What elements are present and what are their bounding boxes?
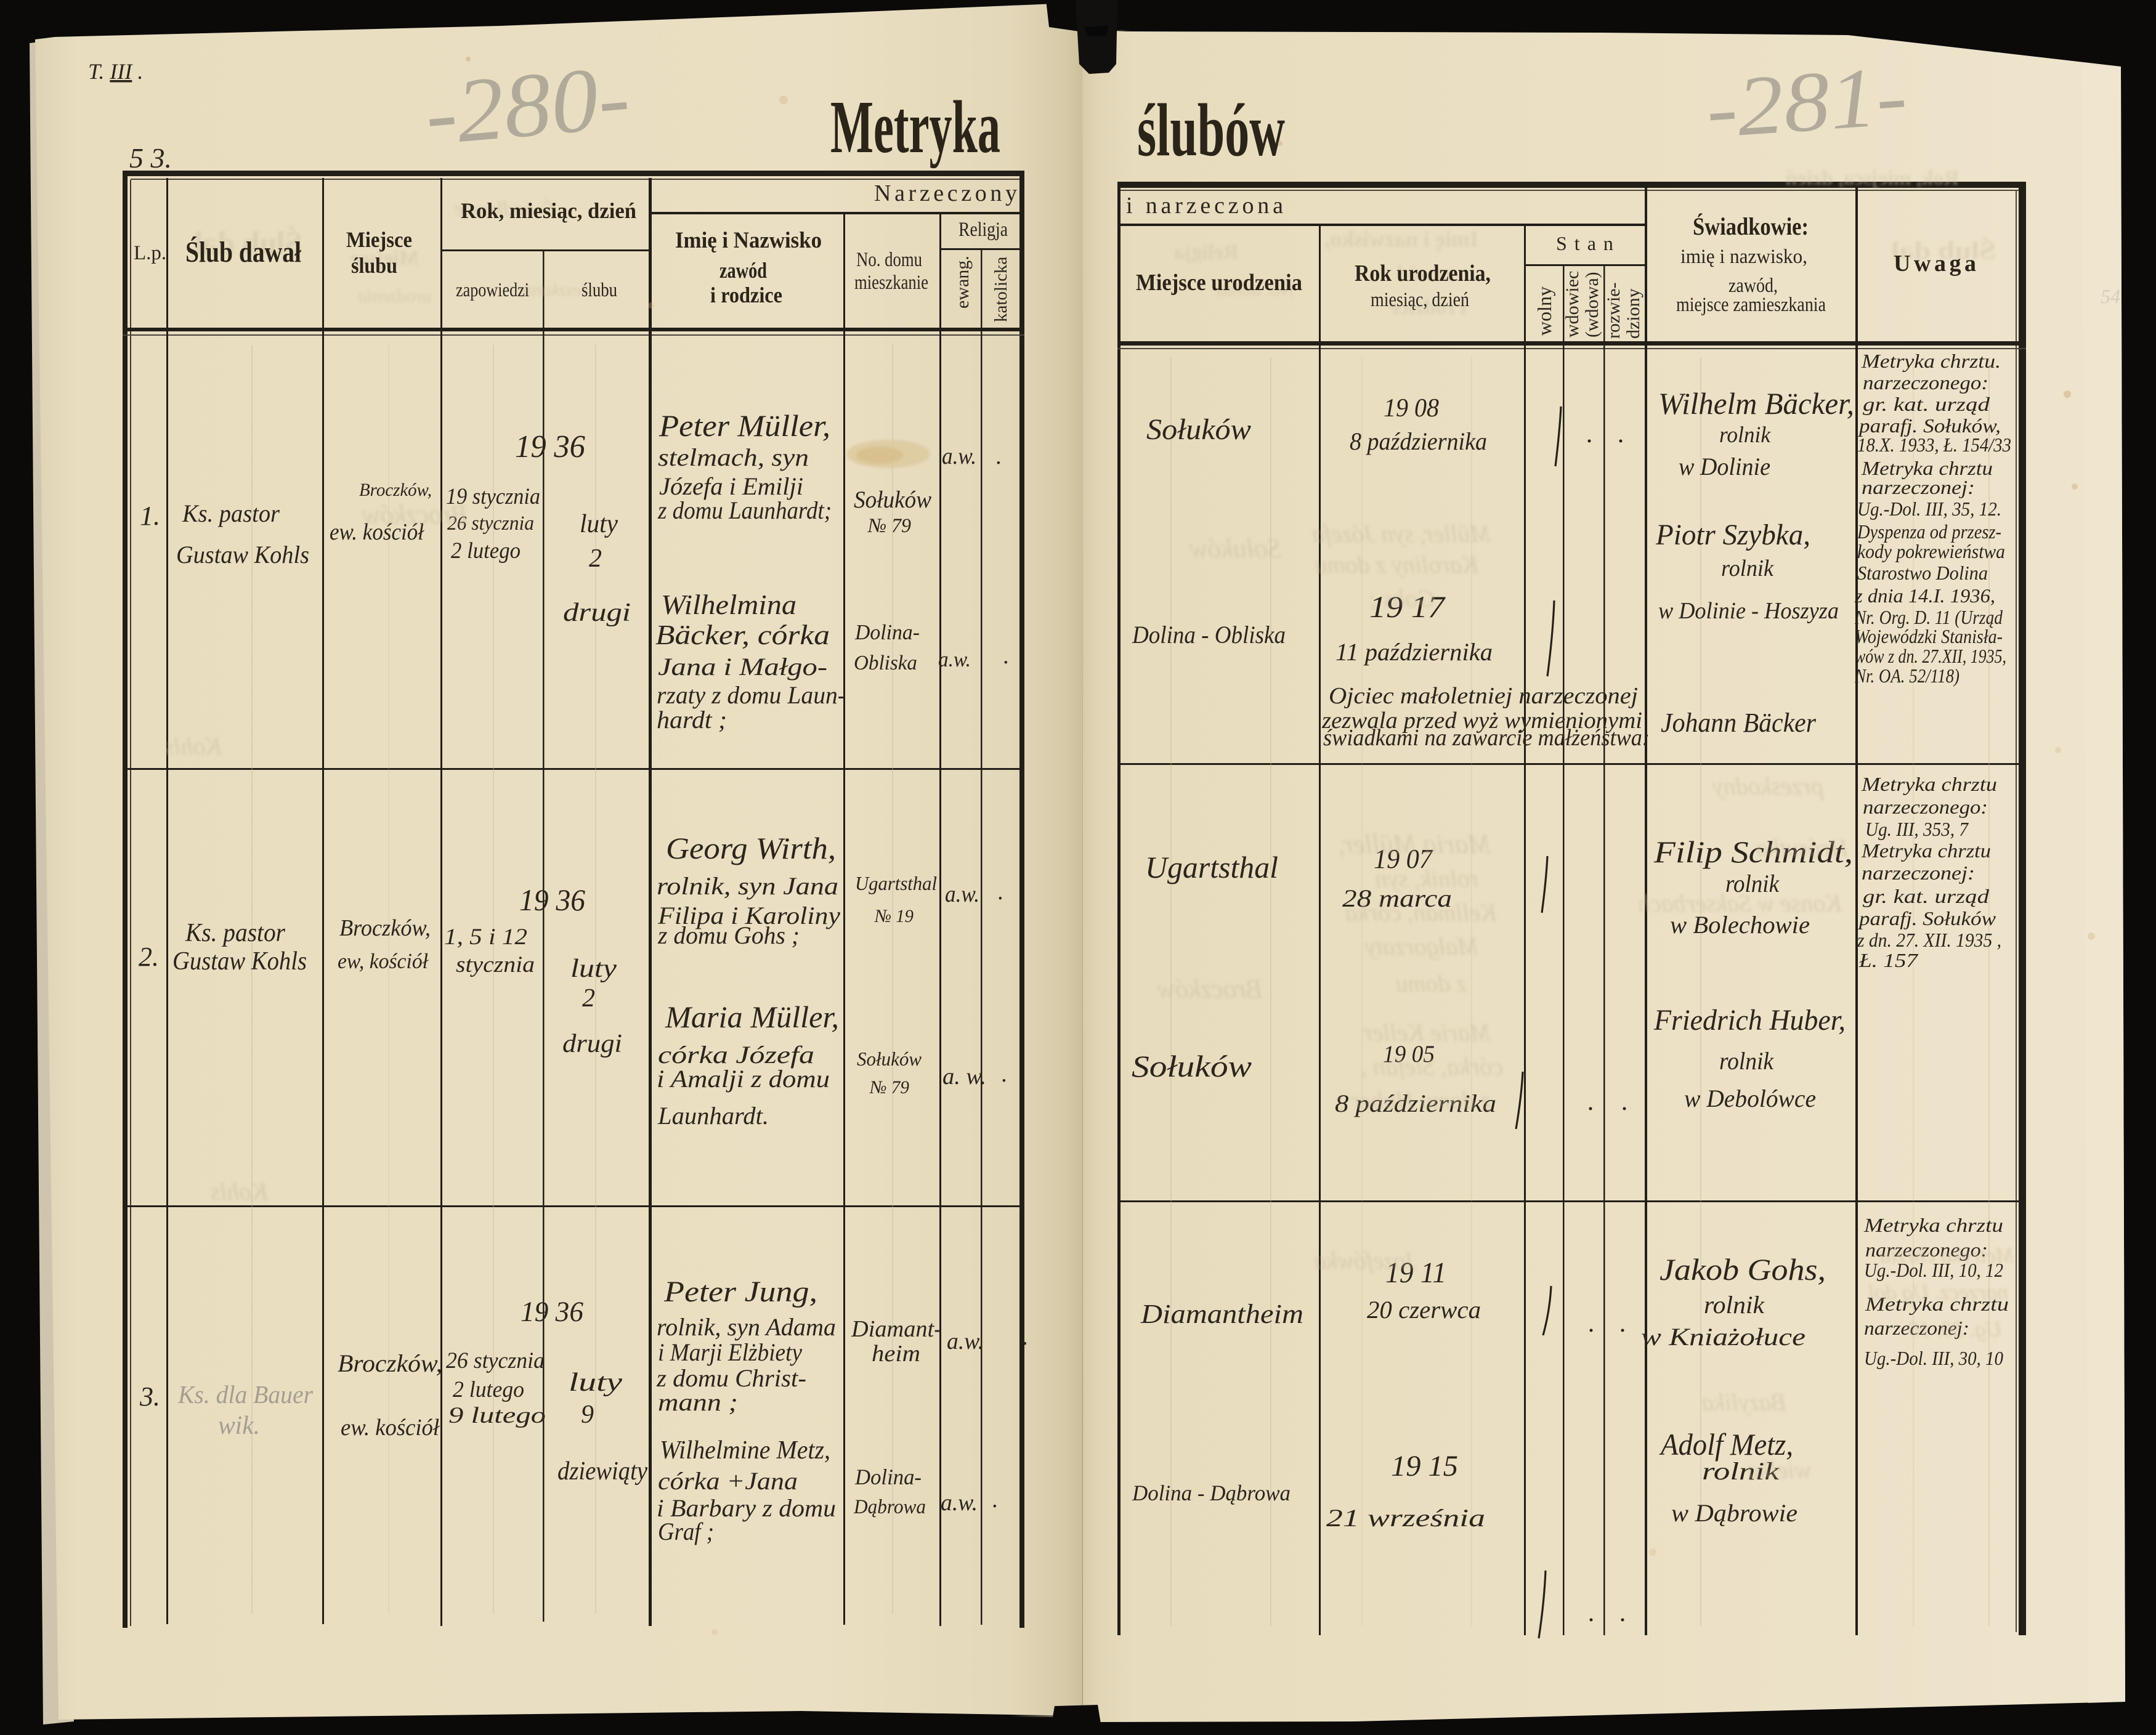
svg-text:narzeczonego:: narzeczonego: [1863, 371, 1988, 394]
svg-text:-280-: -280- [421, 46, 634, 164]
svg-text:Nr. OA. 52/118): Nr. OA. 52/118) [1854, 665, 1959, 687]
svg-text:luty: luty [580, 510, 618, 538]
svg-text:Religja: Religja [958, 219, 1008, 241]
svg-text:miesiąc, dzień: miesiąc, dzień [1371, 289, 1469, 311]
svg-text:Miejsce urodzenia: Miejsce urodzenia [1136, 270, 1302, 296]
svg-text:Jakob Gohs,: Jakob Gohs, [1660, 1252, 1826, 1287]
svg-text:Karoliny z domu: Karoliny z domu [1315, 551, 1479, 578]
svg-text:Miejsce: Miejsce [346, 227, 412, 252]
svg-text:świadkami na zawarcie małżeńst: świadkami na zawarcie małżeństwa: [1323, 725, 1650, 751]
svg-text:.: . [1023, 1324, 1029, 1350]
svg-text:Ks. pastor: Ks. pastor [185, 919, 286, 947]
svg-text:ślubów: ślubów [1137, 89, 1285, 172]
svg-text:Ug.-Dol. III, 30, 10: Ug.-Dol. III, 30, 10 [1864, 1347, 2003, 1369]
svg-text:drugi: drugi [562, 1030, 622, 1058]
svg-text:Kellman, córka: Kellman, córka [1345, 899, 1497, 926]
svg-text:Imię i Nazwisko: Imię i Nazwisko [675, 228, 822, 253]
svg-text:dziewiąty: dziewiąty [557, 1457, 647, 1486]
svg-text:Ug. 30. 10: Ug. 30. 10 [1908, 1317, 2002, 1341]
svg-text:Diamant-: Diamant- [851, 1316, 942, 1342]
svg-text:a.w.: a.w. [942, 443, 976, 469]
svg-text:urodzenia: urodzenia [358, 286, 431, 306]
svg-text:i rodzice: i rodzice [710, 283, 782, 307]
svg-text:Ugartsthal: Ugartsthal [1145, 850, 1278, 884]
svg-text:Broczków,: Broczków, [338, 1349, 442, 1377]
svg-text:№ 79: № 79 [867, 515, 911, 537]
svg-text:Starostwo Dolina: Starostwo Dolina [1857, 562, 1988, 584]
svg-text:Metryka chrztu: Metryka chrztu [1861, 773, 1997, 795]
svg-text:20 czerwca: 20 czerwca [1367, 1296, 1481, 1324]
svg-text:zapowiedzi: zapowiedzi [456, 278, 529, 301]
svg-text:z domu Launhardt;: z domu Launhardt; [657, 496, 832, 524]
svg-text:Müller, syn Józefa: Müller, syn Józefa [1312, 520, 1491, 548]
svg-text:19 36: 19 36 [515, 429, 585, 464]
svg-text:Ojciec małoletniej narzeczonej: Ojciec małoletniej narzeczonej [1329, 683, 1638, 709]
svg-text:Bazylika: Bazylika [1701, 1388, 1786, 1416]
svg-text:rzaty z domu Laun-: rzaty z domu Laun- [657, 681, 846, 709]
svg-text:wdowiec: wdowiec [1562, 271, 1583, 338]
svg-text:stelmach, syn: stelmach, syn [658, 443, 809, 471]
svg-text:gr. kat. urząd: gr. kat. urząd [1863, 393, 1990, 415]
svg-text:Dyspenza od przesz-: Dyspenza od przesz- [1857, 520, 2001, 543]
svg-text:Wilhelm Bäcker,: Wilhelm Bäcker, [1658, 386, 1854, 421]
svg-text:Kohls: Kohls [211, 1178, 269, 1205]
svg-text:Ks. dla Bauer: Ks. dla Bauer [177, 1380, 314, 1409]
svg-text:2 lutego: 2 lutego [451, 538, 521, 564]
svg-text:wielka: wielka [1747, 1456, 1811, 1484]
svg-text:Gohs ;: Gohs ; [1369, 584, 1435, 612]
svg-text:imię i nazwisko,: imię i nazwisko, [1680, 246, 1807, 268]
svg-text:1, 5 i 12: 1, 5 i 12 [444, 924, 527, 950]
svg-text:Diamantheim: Diamantheim [1140, 1299, 1303, 1329]
svg-text:kody pokrewieństwa: kody pokrewieństwa [1857, 540, 2005, 562]
svg-text:rolnik, syn Jana: rolnik, syn Jana [657, 872, 838, 900]
svg-text:Uwaga: Uwaga [1894, 251, 1982, 277]
svg-text:z dn. 27. XII. 1935 ,: z dn. 27. XII. 1935 , [1857, 929, 2001, 951]
svg-text:w Dolinie - Hoszyza: w Dolinie - Hoszyza [1658, 598, 1839, 624]
svg-text:drugi: drugi [563, 599, 631, 627]
svg-text:Hrósutko: Hrósutko [1756, 834, 1849, 862]
svg-text:a.w.: a.w. [938, 647, 971, 671]
svg-text:córka, Stefan ,: córka, Stefan , [1361, 1053, 1503, 1080]
svg-text:.: . [996, 443, 1002, 469]
svg-text:Rok, miesiąc, dzień: Rok, miesiąc, dzień [461, 198, 636, 223]
svg-text:Jana i Małgo-: Jana i Małgo- [658, 653, 827, 681]
svg-text:przeskodny: przeskodny [1712, 772, 1825, 800]
svg-text:Gustaw Kohls: Gustaw Kohls [176, 541, 309, 568]
svg-text:miejsce zamieszkania: miejsce zamieszkania [1676, 294, 1826, 316]
svg-text:(wdowa): (wdowa) [1582, 272, 1602, 338]
svg-text:Ślub dawał: Ślub dawał [185, 235, 302, 269]
svg-text:9 lutego: 9 lutego [448, 1403, 546, 1428]
svg-text:Maria Müller,: Maria Müller, [1339, 829, 1491, 859]
svg-text:Ks. pastor: Ks. pastor [182, 499, 280, 527]
svg-text:Imię i nazwisko,: Imię i nazwisko, [1325, 227, 1478, 251]
svg-text:Małgorzaty: Małgorzaty [1364, 932, 1479, 960]
svg-text:Broczków: Broczków [1156, 974, 1263, 1004]
svg-text:Ł. 157: Ł. 157 [1858, 949, 1919, 971]
svg-text:.: . [992, 1487, 999, 1513]
svg-text:Metryka: Metryka [830, 86, 1000, 169]
svg-text:2 lutego: 2 lutego [453, 1377, 524, 1402]
svg-text:Peter Jung,: Peter Jung, [663, 1276, 817, 1308]
svg-text:w Debolówce: w Debolówce [1684, 1085, 1816, 1112]
svg-text:Metryka chrztu.: Metryka chrztu. [1861, 350, 2001, 372]
svg-text:Jozefówka: Jozefówka [1314, 1247, 1417, 1274]
svg-text:Świadkowie:: Świadkowie: [1693, 212, 1809, 240]
svg-text:2: 2 [589, 544, 602, 573]
svg-text:rolnik, syn: rolnik, syn [1376, 865, 1478, 892]
svg-text:Metryka chrztu: Metryka chrztu [1879, 1243, 2015, 1268]
svg-text:w Kniażołuce: w Kniażołuce [1641, 1323, 1805, 1351]
svg-text:Dolina - Dąbrowa: Dolina - Dąbrowa [1132, 1481, 1291, 1505]
svg-text:L.p.: L.p. [134, 242, 166, 264]
svg-text:Broczków,: Broczków, [339, 915, 431, 941]
svg-text:Johann Bäcker: Johann Bäcker [1661, 708, 1817, 738]
svg-text:Launhardt.: Launhardt. [657, 1102, 769, 1130]
svg-text:2.: 2. [139, 942, 159, 972]
svg-text:Kohls: Kohls [164, 732, 222, 760]
svg-text:rolnik: rolnik [1719, 423, 1771, 448]
svg-text:Dąbrowa: Dąbrowa [853, 1496, 926, 1518]
svg-text:.: . [1002, 1061, 1008, 1087]
svg-text:18.X. 1933, Ł. 154/33: 18.X. 1933, Ł. 154/33 [1857, 434, 2011, 456]
svg-text:mann ;: mann ; [658, 1388, 738, 1416]
svg-text:Broczków,: Broczków, [359, 480, 432, 500]
svg-text:rolnik, syn Adama: rolnik, syn Adama [657, 1313, 836, 1341]
svg-text:21 września: 21 września [1326, 1504, 1485, 1532]
svg-text:narzeczonej:: narzeczonej: [1862, 862, 1975, 884]
svg-text:Rok urodzenia,: Rok urodzenia, [1355, 261, 1491, 286]
svg-text:narzecz. Ug dol: narzecz. Ug dol [1868, 1280, 2008, 1304]
svg-text:Rok, miejsca, dzień: Rok, miejsca, dzień [1785, 167, 1959, 190]
svg-text:Gustaw Kohls: Gustaw Kohls [172, 947, 307, 976]
svg-text:luty: luty [570, 955, 617, 983]
svg-text:ewang.: ewang. [952, 256, 973, 309]
svg-text:Peter Müller,: Peter Müller, [659, 408, 830, 443]
svg-text:Broczków: Broczków [362, 499, 468, 530]
svg-text:19 36: 19 36 [519, 883, 585, 917]
svg-text:rozwie-: rozwie- [1603, 282, 1624, 339]
svg-text:w Dolinie: w Dolinie [1679, 453, 1770, 480]
svg-text:w Dąbrowie: w Dąbrowie [1671, 1499, 1797, 1527]
svg-text:Obliska: Obliska [854, 652, 917, 674]
svg-text:-281-: -281- [1703, 48, 1910, 156]
svg-text:z domu Gohs ;: z domu Gohs ; [657, 921, 800, 949]
svg-text:2: 2 [582, 984, 595, 1013]
svg-text:i Amalji z domu: i Amalji z domu [657, 1065, 830, 1093]
svg-text:i Marji Elżbiety: i Marji Elżbiety [658, 1338, 802, 1366]
svg-text:a.w.: a.w. [947, 1329, 984, 1354]
svg-text:9: 9 [581, 1401, 594, 1429]
svg-text:a.w.: a.w. [941, 1490, 978, 1516]
svg-text:.: . [1003, 643, 1010, 669]
svg-text:No. domu: No. domu [856, 249, 922, 271]
svg-text:Maria Müller,: Maria Müller, [665, 1000, 839, 1034]
svg-text:Marie Keller: Marie Keller [1363, 1019, 1491, 1046]
svg-text:i narzeczona: i narzeczona [1126, 193, 1289, 219]
svg-text:wolny: wolny [1533, 286, 1555, 336]
svg-text:katolicka: katolicka [991, 257, 1011, 322]
svg-text:Wojewódzki Stanisła-: Wojewódzki Stanisła- [1855, 625, 2003, 647]
svg-text:a.w.: a.w. [945, 881, 979, 907]
svg-text:zawód: zawód [719, 258, 767, 283]
svg-text:Sołuków: Sołuków [1189, 533, 1281, 564]
svg-text:gr. kat. urząd: gr. kat. urząd [1863, 885, 1990, 907]
svg-text:5 3.: 5 3. [129, 142, 172, 174]
svg-text:ślubu: ślubu [351, 253, 397, 278]
svg-text:Ugartsthal: Ugartsthal [855, 872, 937, 894]
svg-text:8 października: 8 października [1350, 427, 1487, 455]
svg-text:Bäcker, córka: Bäcker, córka [655, 619, 830, 650]
svg-text:dziony: dziony [1623, 288, 1643, 339]
svg-text:rolnik: rolnik [1719, 1047, 1774, 1075]
svg-text:mieszkanie: mieszkanie [854, 272, 928, 294]
svg-text:3.: 3. [139, 1381, 160, 1412]
svg-text:Sołuków: Sołuków [1132, 1049, 1252, 1083]
svg-text:Stan: Stan [1556, 232, 1621, 254]
svg-text:narzeczonej:: narzeczonej: [1862, 476, 1975, 498]
svg-text:Friedrich Huber,: Friedrich Huber, [1653, 1004, 1846, 1037]
svg-text:ew. kościół: ew. kościół [341, 1415, 440, 1441]
svg-text:Dolina - Obliska: Dolina - Obliska [1132, 621, 1286, 649]
svg-text:54: 54 [2101, 285, 2120, 307]
svg-text:wów z dn. 27.XII, 1935,: wów z dn. 27.XII, 1935, [1855, 645, 2006, 667]
svg-text:26 stycznia: 26 stycznia [446, 1348, 545, 1373]
svg-text:narzeczonego:: narzeczonego: [1863, 796, 1988, 818]
svg-text:Ug. III, 353, 7: Ug. III, 353, 7 [1865, 818, 1969, 840]
svg-text:Metryka chrztu: Metryka chrztu [1861, 839, 1991, 862]
svg-text:1.: 1. [140, 501, 160, 531]
svg-text:a. w.: a. w. [942, 1064, 986, 1090]
svg-text:rolnik: rolnik [1721, 556, 1774, 581]
svg-text:№ 79: № 79 [869, 1077, 909, 1098]
svg-text:Graf ;: Graf ; [658, 1518, 714, 1545]
svg-text:heim: heim [872, 1341, 920, 1367]
svg-text:T. III .: T. III . [88, 59, 143, 84]
svg-text:Piotr Szybka,: Piotr Szybka, [1655, 519, 1810, 551]
svg-text:córka +Jana: córka +Jana [658, 1467, 798, 1495]
svg-text:Sołuków: Sołuków [857, 1048, 922, 1070]
svg-text:.: . [998, 879, 1004, 905]
svg-text:Konse w Sakserbach: Konse w Sakserbach [1638, 889, 1842, 917]
svg-text:z domu Huber ;: z domu Huber ; [1337, 1086, 1491, 1114]
svg-text:hardt ;: hardt ; [657, 706, 727, 734]
svg-text:Religja: Religja [1174, 241, 1238, 264]
svg-text:z domu: z domu [1396, 969, 1467, 997]
svg-text:Sołuków: Sołuków [854, 487, 931, 513]
svg-text:Sołuków: Sołuków [1146, 413, 1251, 446]
svg-text:Wilhelmine Metz,: Wilhelmine Metz, [660, 1436, 830, 1465]
svg-text:Ug.-Dol. III, 35, 12.: Ug.-Dol. III, 35, 12. [1857, 498, 2001, 520]
svg-text:z dnia 14.I. 1936,: z dnia 14.I. 1936, [1854, 584, 1995, 607]
svg-text:Narzeczony: Narzeczony [874, 180, 1022, 206]
svg-text:19 08: 19 08 [1384, 394, 1439, 423]
svg-text:ślubu: ślubu [582, 278, 617, 301]
svg-text:parafj. Sołuków: parafj. Sołuków [1858, 907, 1996, 929]
svg-text:wik.: wik. [218, 1412, 260, 1440]
svg-text:ew, kościół: ew, kościół [338, 949, 429, 973]
svg-text:Dolina-: Dolina- [854, 620, 920, 644]
svg-text:Georg Wirth,: Georg Wirth, [666, 831, 836, 865]
svg-text:stycznia: stycznia [456, 952, 535, 977]
svg-text:11 października: 11 października [1335, 638, 1493, 666]
svg-text:luty: luty [569, 1369, 622, 1397]
svg-text:Dolina-: Dolina- [854, 1465, 922, 1489]
svg-text:rolnik: rolnik [1704, 1291, 1765, 1319]
svg-text:Wilhelmina: Wilhelmina [661, 589, 796, 620]
svg-text:№ 19: № 19 [874, 906, 914, 926]
svg-text:19 15: 19 15 [1391, 1450, 1458, 1482]
svg-text:Metryka chrztu: Metryka chrztu [1863, 1214, 2003, 1236]
svg-text:19 36: 19 36 [521, 1296, 583, 1328]
